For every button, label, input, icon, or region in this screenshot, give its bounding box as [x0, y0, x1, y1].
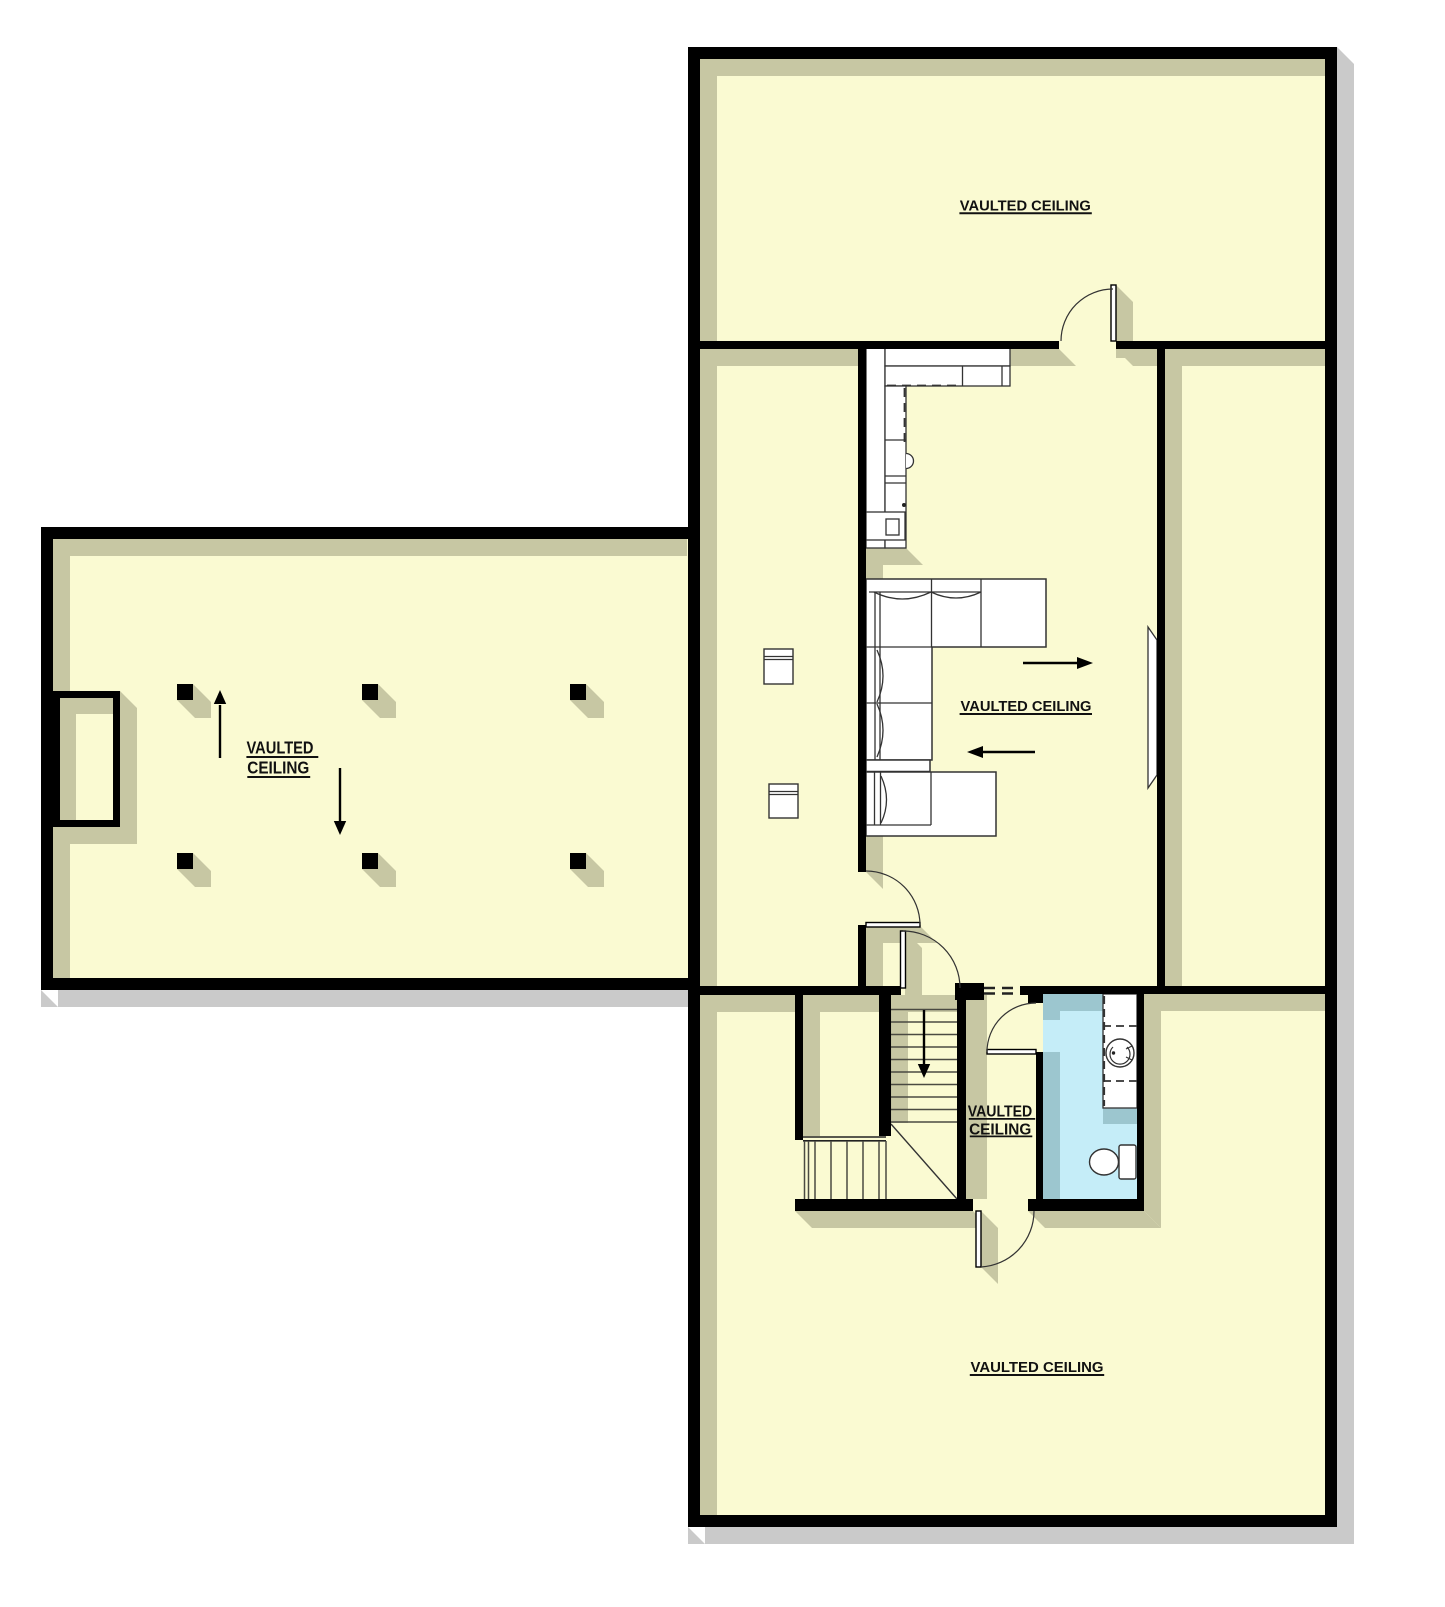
svg-text:VAULTED CEILING: VAULTED CEILING: [960, 198, 1091, 214]
svg-text:VAULTED: VAULTED: [247, 738, 314, 758]
svg-text:VAULTED CEILING: VAULTED CEILING: [961, 699, 1092, 715]
svg-text:CEILING: CEILING: [247, 757, 309, 777]
svg-text:VAULTED CEILING: VAULTED CEILING: [971, 1360, 1104, 1376]
